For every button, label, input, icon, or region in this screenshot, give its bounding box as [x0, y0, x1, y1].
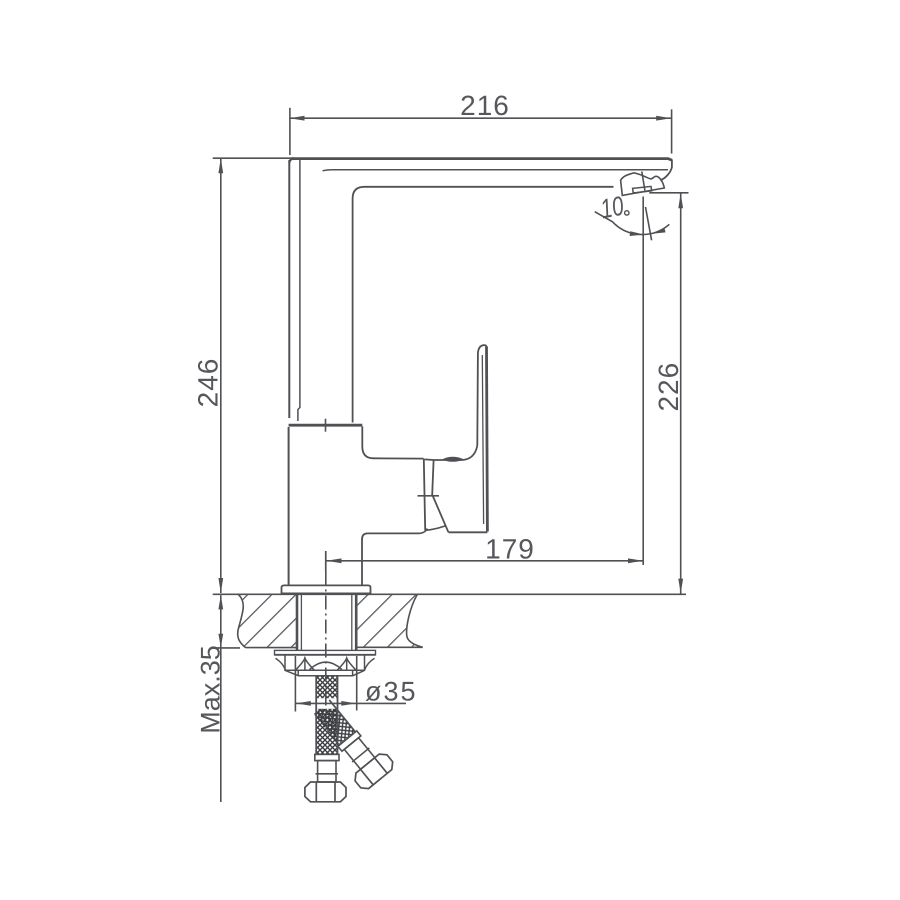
svg-text:ø35: ø35	[365, 677, 418, 707]
svg-text:216: 216	[460, 90, 510, 121]
svg-text:246: 246	[193, 358, 224, 408]
svg-text:179: 179	[485, 534, 535, 565]
svg-text:226: 226	[653, 362, 684, 412]
